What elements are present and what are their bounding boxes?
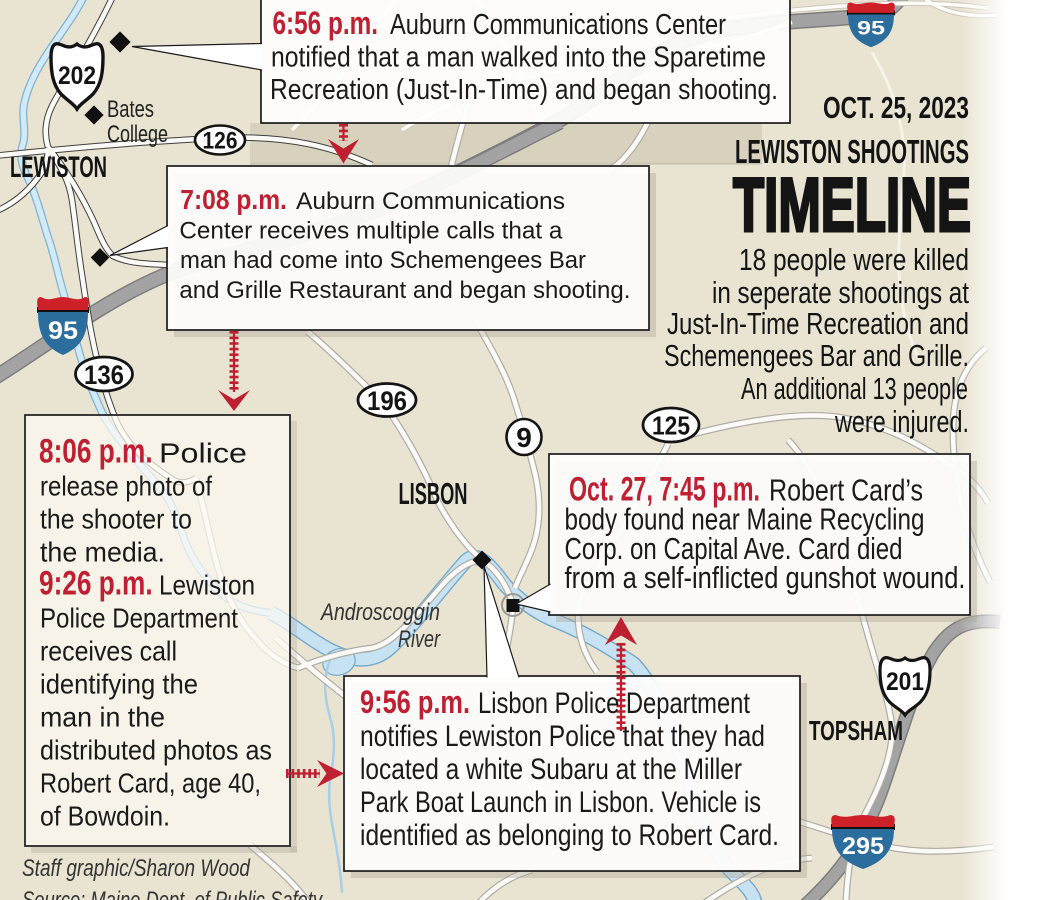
svg-text:9:56 p.m.: 9:56 p.m. (360, 684, 470, 720)
svg-text:Robert Card, age 40,: Robert Card, age 40, (40, 768, 261, 799)
svg-text:Auburn Communications: Auburn Communications (296, 188, 565, 215)
svg-text:Source: Maine Dept. of Public: Source: Maine Dept. of Public Safety (22, 887, 324, 900)
svg-text:8:06 p.m.: 8:06 p.m. (39, 433, 153, 471)
svg-text:7:08 p.m.: 7:08 p.m. (180, 184, 287, 215)
svg-text:201: 201 (886, 668, 924, 696)
svg-text:202: 202 (58, 62, 96, 90)
svg-text:196: 196 (367, 386, 407, 416)
svg-text:the shooter to: the shooter to (40, 504, 192, 535)
svg-text:95: 95 (48, 317, 78, 345)
svg-text:Schemengees Bar and Grille.: Schemengees Bar and Grille. (664, 338, 969, 373)
svg-text:Park Boat Launch in Lisbon. Ve: Park Boat Launch in Lisbon. Vehicle is (360, 786, 761, 819)
svg-text:95: 95 (857, 17, 885, 39)
svg-text:from a self-inflicted gunshot: from a self-inflicted gunshot wound. (565, 560, 966, 595)
svg-text:identified as belonging to Rob: identified as belonging to Robert Card. (360, 819, 779, 852)
svg-text:notified that a man walked int: notified that a man walked into the Spar… (271, 41, 766, 73)
svg-text:Auburn Communications Center: Auburn Communications Center (390, 9, 726, 41)
svg-text:in seperate shootings at: in seperate shootings at (712, 275, 969, 310)
svg-text:126: 126 (203, 128, 238, 155)
svg-text:18 people were killed: 18 people were killed (739, 242, 969, 277)
svg-text:Just-In-Time Recreation and: Just-In-Time Recreation and (667, 306, 969, 341)
svg-text:Lisbon Police Department: Lisbon Police Department (478, 687, 751, 720)
svg-text:An additional 13 people: An additional 13 people (741, 371, 968, 406)
svg-text:6:56 p.m.: 6:56 p.m. (273, 5, 379, 41)
svg-text:LEWISTON: LEWISTON (10, 151, 107, 184)
svg-text:Bates: Bates (107, 96, 154, 123)
svg-text:295: 295 (842, 833, 884, 860)
svg-text:TIMELINE: TIMELINE (733, 163, 971, 248)
svg-text:the media.: the media. (40, 537, 165, 568)
svg-text:Androscoggin: Androscoggin (319, 599, 440, 626)
svg-text:distributed photos as: distributed photos as (40, 735, 272, 766)
svg-text:man in the: man in the (40, 702, 165, 733)
svg-text:release photo of: release photo of (40, 471, 212, 502)
svg-text:River: River (398, 626, 441, 653)
svg-text:LISBON: LISBON (399, 476, 468, 511)
svg-text:receives call: receives call (40, 636, 177, 667)
svg-text:Police: Police (159, 438, 247, 469)
svg-text:notifies Lewiston Police that: notifies Lewiston Police that they had (360, 720, 765, 753)
svg-text:Recreation (Just-In-Time) and: Recreation (Just-In-Time) and began shoo… (270, 74, 778, 106)
svg-text:TOPSHAM: TOPSHAM (809, 715, 903, 746)
svg-text:located a white Subaru at the: located a white Subaru at the Miller (360, 753, 742, 786)
svg-text:125: 125 (652, 411, 690, 441)
svg-text:Center receives multiple calls: Center receives multiple calls that a (179, 218, 563, 245)
svg-text:were injured.: were injured. (834, 404, 969, 439)
svg-text:man had come into Schemengees: man had come into Schemengees Bar (180, 247, 586, 274)
svg-text:Staff graphic/Sharon Wood: Staff graphic/Sharon Wood (22, 855, 251, 882)
svg-text:Police Department: Police Department (40, 603, 238, 634)
svg-text:identifying the: identifying the (40, 669, 198, 700)
svg-text:OCT. 25, 2023: OCT. 25, 2023 (823, 90, 969, 125)
svg-text:and Grille Restaurant and bega: and Grille Restaurant and began shooting… (179, 277, 630, 304)
svg-text:of Bowdoin.: of Bowdoin. (40, 801, 170, 832)
svg-text:College: College (107, 121, 168, 148)
svg-text:9:26 p.m.: 9:26 p.m. (39, 565, 153, 603)
svg-text:Lewiston: Lewiston (159, 570, 255, 601)
svg-text:136: 136 (84, 360, 124, 390)
svg-text:9: 9 (516, 422, 532, 453)
